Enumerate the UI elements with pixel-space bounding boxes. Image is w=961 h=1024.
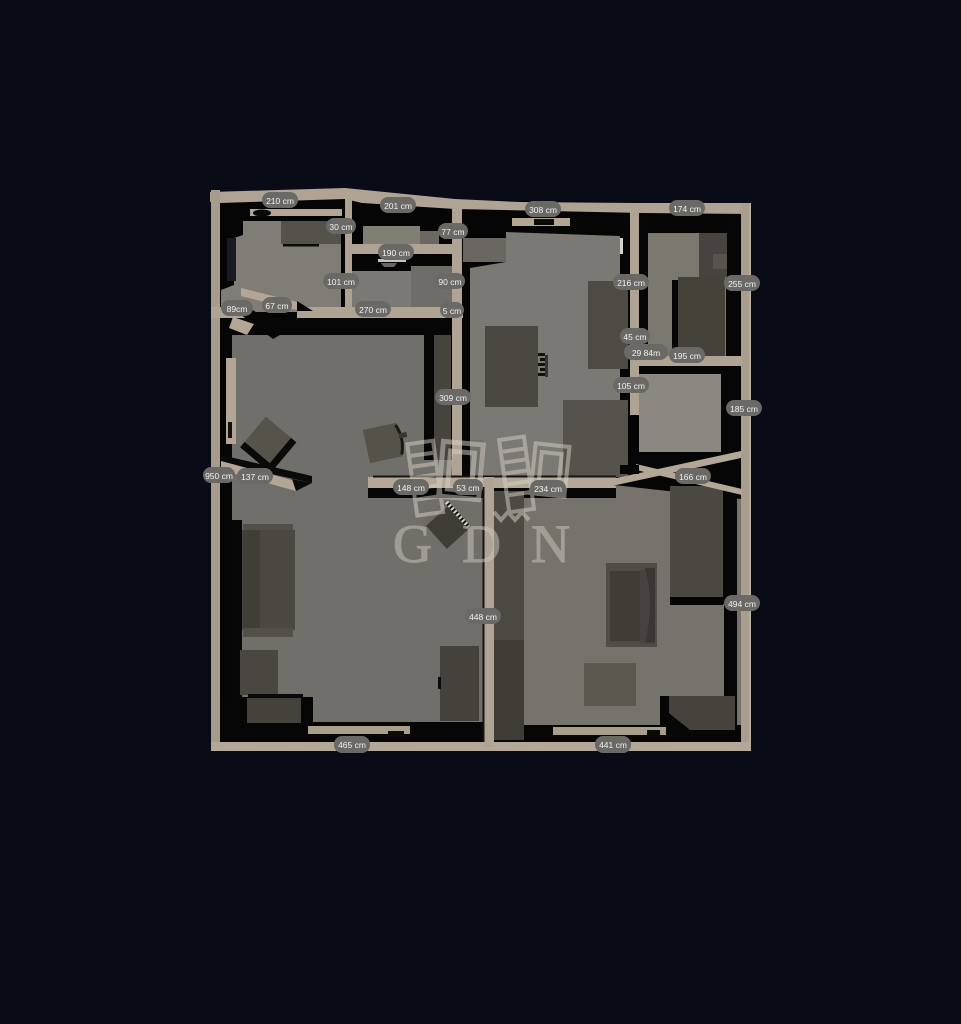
svg-text:77 cm: 77 cm — [441, 227, 464, 237]
svg-text:308 cm: 308 cm — [529, 205, 557, 215]
svg-text:90 cm: 90 cm — [438, 277, 461, 287]
svg-text:67 cm: 67 cm — [265, 301, 288, 311]
svg-text:53 cm: 53 cm — [456, 483, 479, 493]
svg-text:210 cm: 210 cm — [266, 196, 294, 206]
svg-text:448 cm: 448 cm — [469, 612, 497, 622]
svg-text:GDN: GDN — [393, 514, 600, 574]
svg-text:137 cm: 137 cm — [241, 472, 269, 482]
svg-text:89cm: 89cm — [227, 304, 248, 314]
svg-text:309 cm: 309 cm — [439, 393, 467, 403]
svg-text:190 cm: 190 cm — [382, 248, 410, 258]
svg-text:101 cm: 101 cm — [327, 277, 355, 287]
svg-text:105 cm: 105 cm — [617, 381, 645, 391]
svg-text:195 cm: 195 cm — [673, 351, 701, 361]
svg-text:174 cm: 174 cm — [673, 204, 701, 214]
svg-text:185 cm: 185 cm — [730, 404, 758, 414]
svg-text:201 cm: 201 cm — [384, 201, 412, 211]
svg-text:166 cm: 166 cm — [679, 472, 707, 482]
svg-text:5 cm: 5 cm — [443, 306, 461, 316]
svg-text:270 cm: 270 cm — [359, 305, 387, 315]
svg-text:465 cm: 465 cm — [338, 740, 366, 750]
svg-text:950 cm: 950 cm — [205, 471, 233, 481]
svg-text:29 84m: 29 84m — [632, 348, 660, 358]
svg-text:494 cm: 494 cm — [728, 599, 756, 609]
svg-text:255 cm: 255 cm — [728, 279, 756, 289]
svg-text:45 cm: 45 cm — [623, 332, 646, 342]
svg-text:148 cm: 148 cm — [397, 483, 425, 493]
svg-text:234 cm: 234 cm — [534, 484, 562, 494]
svg-text:441 cm: 441 cm — [599, 740, 627, 750]
svg-text:30 cm: 30 cm — [329, 222, 352, 232]
svg-text:216 cm: 216 cm — [617, 278, 645, 288]
